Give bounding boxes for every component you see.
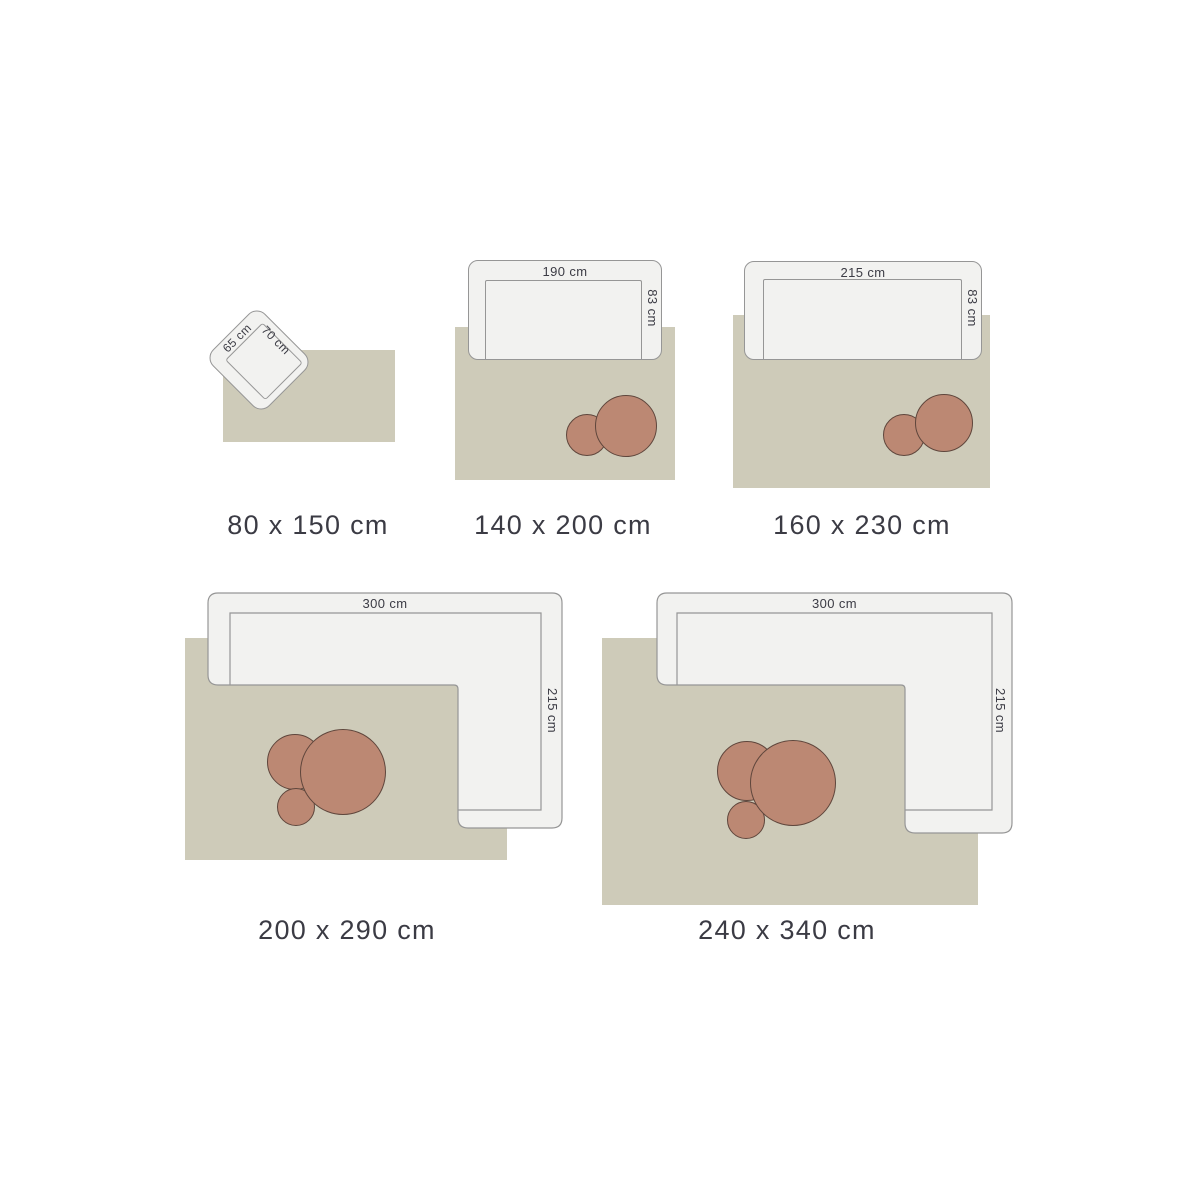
coffee-table-large-icon (595, 395, 657, 457)
sofa-icon: 215 cm (744, 261, 982, 360)
sofa-depth-label: 215 cm (545, 688, 559, 732)
corner-sofa-outline (208, 593, 562, 828)
size-label: 140 x 200 cm (413, 509, 713, 541)
rug-size-guide: 65 cm 70 cm 80 x 150 cm 190 cm 83 cm 140… (0, 0, 1200, 1200)
size-label: 240 x 340 cm (637, 914, 937, 946)
sofa-width-label: 215 cm (745, 266, 981, 280)
sofa-depth-label: 83 cm (965, 286, 979, 330)
sofa-width-label: 300 cm (657, 597, 1012, 611)
coffee-table-large-icon (915, 394, 973, 452)
sofa-width-label: 190 cm (469, 265, 661, 279)
sofa-icon: 190 cm (468, 260, 662, 360)
sofa-seat (763, 279, 962, 359)
size-label: 200 x 290 cm (197, 914, 497, 946)
sofa-depth-label: 83 cm (645, 286, 659, 330)
sofa-seat (485, 280, 642, 359)
corner-sofa-icon (207, 592, 563, 829)
sofa-width-label: 300 cm (208, 597, 562, 611)
corner-sofa-icon (656, 592, 1013, 834)
corner-sofa-outline (657, 593, 1012, 833)
sofa-depth-label: 215 cm (993, 688, 1007, 732)
size-label: 160 x 230 cm (712, 509, 1012, 541)
